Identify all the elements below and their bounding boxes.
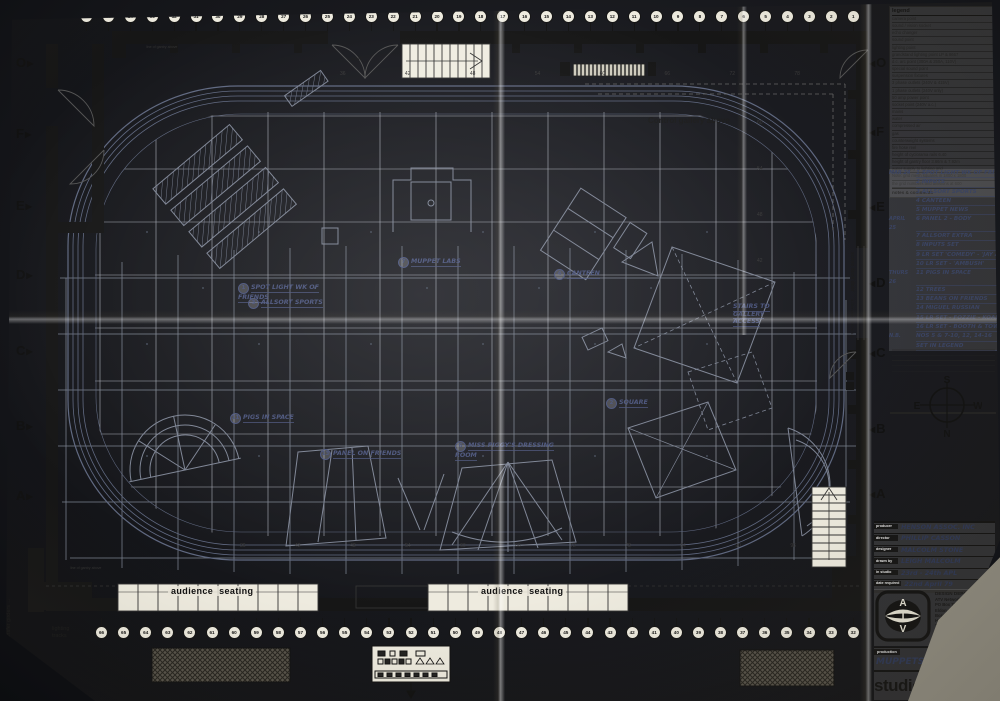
lighting-track-marker: 8 [693, 10, 706, 31]
title-block-label: drawn by [874, 558, 898, 563]
lighting-track-marker: 42 [626, 618, 639, 639]
lighting-track-marker: 51 [427, 618, 440, 639]
ruled-lines-block [892, 345, 995, 375]
grid-number: 78 [794, 71, 800, 77]
handwritten-annotation: 11PIGS IN SPACE [230, 413, 294, 424]
scene-dock-door-label: scene dock door 4.26m wide x 4.57m high [846, 252, 864, 338]
atv-logo-block: A T V DESIGN DEPARTMENT ATV Network LtdP… [874, 589, 995, 646]
lighting-tracks-top-label: lighting tracks → [36, 11, 80, 17]
note-row: 13 BEANS ON FRIENDS [889, 295, 997, 304]
title-block-label: in studio [874, 570, 898, 575]
lighting-track-marker: 3 [803, 10, 816, 31]
lighting-track-marker: 12 [606, 10, 619, 31]
note-row: 3 ALLSORT SPORTS [889, 188, 997, 197]
lighting-track-marker: 63 [161, 618, 174, 639]
title-block-label: designer [874, 547, 898, 552]
note-text: 14 MIGUEL RUSSIAN [916, 304, 997, 313]
lighting-track-marker: 17 [496, 10, 509, 31]
lighting-track-marker: 39 [692, 618, 705, 639]
legend-row: counterweight systems [892, 138, 998, 145]
note-date [889, 260, 914, 269]
legend-row: compressed air [892, 123, 998, 130]
title-block-row: designer MALCOLM STONE [874, 546, 995, 557]
grid-number: 72 [570, 543, 576, 549]
grid-number: 78 [625, 543, 631, 549]
exit-label-top: exit [352, 56, 362, 61]
lighting-track-marker: 62 [183, 618, 196, 639]
handwritten-annotation: STAIRS TO GALLERY ACCESS [733, 303, 791, 326]
atv-address-lines: ATV Network LtdPO Box 70Eldon AvenueBore… [935, 597, 985, 634]
production-number-label: number [975, 649, 995, 655]
title-block-row: drawn by LEIGH MALCOLM [874, 557, 995, 568]
note-date: APRIL 25 [889, 215, 914, 232]
note-row: THURS 26 11 PIGS IN SPACE [889, 269, 997, 286]
grid-letter: E [869, 200, 885, 214]
note-date [889, 232, 914, 241]
scale-block: scale 1:50 [965, 676, 995, 697]
address-line: Tel 01-953 6100 [935, 623, 985, 628]
lighting-track-marker: 50 [449, 618, 462, 639]
audience-seating-label-left: audience seating [168, 586, 256, 596]
photograph-of-floor-plan: lighting tracks → 3635343332313029282726… [0, 0, 1000, 701]
handwritten-annotation: 3ALLSORT SPORTS [248, 298, 323, 309]
legend-row: socket point (240V a.c.) [892, 102, 998, 109]
grid-number: 66 [665, 71, 671, 77]
legend-title: legend [892, 8, 998, 16]
lighting-track-marker: 45 [559, 618, 572, 639]
legend-row: lighting point [892, 45, 998, 52]
staircase-bottom-right [812, 487, 846, 567]
lighting-track-marker: 28 [255, 10, 268, 31]
lighting-track-marker: 61 [206, 618, 219, 639]
lighting-track-marker: 35 [102, 10, 115, 31]
line-of-gantry-label: line of gantry above [70, 566, 101, 570]
title-block-label: director [874, 535, 898, 540]
lighting-track-marker: 19 [452, 10, 465, 31]
legend-row: d.c. arc point (300A & 250A, 110V) [892, 59, 998, 66]
grid-number: 84 [680, 543, 686, 549]
lighting-track-marker: 30 [211, 10, 224, 31]
note-date [889, 295, 914, 304]
studio-strip: studio D scale 1:50 [874, 670, 995, 700]
note-text: 11 PIGS IN SPACE [916, 269, 997, 286]
lighting-track-marker: 55 [338, 618, 351, 639]
grid-number: 36 [340, 71, 346, 77]
grid-number: 42 [405, 71, 411, 77]
lighting-track-row-top: 3635343332313029282726252423222120191817… [80, 10, 860, 31]
lighting-track-marker: 6 [737, 10, 750, 31]
lighting-track-marker: 57 [294, 618, 307, 639]
note-text: 15 LR SET - FOZZIE - KOALA [916, 314, 997, 323]
title-block-value: 22nd April 79 [904, 580, 952, 589]
lighting-track-marker: 43 [604, 618, 617, 639]
audience-seating-label-right: audience seating [478, 586, 566, 596]
title-block-row: in studio 23rd - 24th APL [874, 569, 995, 580]
grid-letter: B [869, 422, 886, 436]
lighting-track-marker: 47 [515, 618, 528, 639]
lighting-track-marker: 36 [80, 10, 93, 31]
note-text: 8 INPUTS SET [916, 241, 997, 250]
grid-number: 42 [295, 543, 301, 549]
note-row: 9 LR SET 'COMEDY' - 'JAY ANDERSON' [889, 251, 997, 260]
lighting-track-marker: 34 [803, 618, 816, 639]
lighting-track-marker: 41 [648, 618, 661, 639]
legend-row: sound / vision socket [892, 23, 998, 30]
compass-s: S [944, 376, 951, 386]
note-row: 4 CANTEEN [889, 197, 997, 206]
handwritten-notes: MAR 24 1 SPOT LIGHT WK OF FRIENDS 2 INPU… [889, 169, 997, 351]
note-date [889, 314, 914, 323]
note-text: 10 LR SET - 'AMBUSH' [916, 260, 997, 269]
grid-number: 48 [470, 71, 476, 77]
note-text: 4 CANTEEN [916, 197, 997, 206]
grid-letter: D [869, 276, 886, 290]
grid-number: 60 [600, 71, 606, 77]
grid-numbers-bottom: 3642485460667278849096 [240, 543, 796, 549]
note-row: 2 INPUTS [889, 178, 997, 187]
title-block: producer HENSON ASSOC. INC director PHIL… [874, 521, 995, 593]
grid-number: 36 [240, 543, 246, 549]
blueprint-paper: lighting tracks → 3635343332313029282726… [0, 0, 1000, 701]
grid-letter: O [869, 56, 886, 70]
grid-letter: E [16, 199, 32, 213]
atv-address: DESIGN DEPARTMENT ATV Network LtdPO Box … [935, 589, 985, 646]
lighting-track-row-bottom: 6665646362616059585756555453525150494847… [95, 618, 860, 639]
legend-row: suspension fixtures [892, 73, 998, 80]
note-row: 15 LR SET - FOZZIE - KOALA [889, 314, 997, 323]
lighting-track-marker: 18 [474, 10, 487, 31]
legend-row: gas [892, 131, 998, 138]
set-pieces [118, 70, 830, 552]
floor-grid-pencil [56, 246, 858, 574]
lighting-track-marker: 5 [759, 10, 772, 31]
note-date: N.B. [889, 332, 914, 341]
legend-row: fire hose reel [892, 145, 998, 152]
lighting-track-marker: 27 [277, 10, 290, 31]
grid-letter: F [869, 125, 884, 139]
address-line: extension [935, 629, 985, 634]
title-block-value: LEIGH MALCOLM [901, 557, 961, 566]
note-text: 12 TREES [916, 286, 997, 295]
lighting-track-marker: 34 [124, 10, 137, 31]
lighting-track-marker: 26 [299, 10, 312, 31]
note-date: MAR 24 [889, 169, 914, 178]
title-block-label: producer [874, 524, 898, 529]
lighting-track-marker: 40 [670, 618, 683, 639]
lighting-track-marker: 56 [316, 618, 329, 639]
compass-n: N [943, 429, 950, 438]
grid-letter: C [16, 344, 33, 358]
legend-rows: camera pointsound / vision socketecho ch… [892, 16, 998, 188]
atv-logo: A T V [874, 589, 932, 643]
legend-row: sound point [892, 37, 998, 44]
legend-row: grandstand lighting point LP & 8667 [892, 52, 998, 59]
floor-hatched-boxes [152, 648, 834, 686]
note-date [889, 197, 914, 206]
note-text: 1 SPOT LIGHT WK OF FRIENDS [916, 169, 997, 178]
lighting-track-marker: 32 [168, 10, 181, 31]
lighting-track-marker: 7 [715, 10, 728, 31]
handwritten-annotation: 7MUPPET LABS [398, 257, 461, 268]
note-text: 7 ALLSORT EXTRA [916, 232, 997, 241]
note-date [889, 323, 914, 332]
production-title-handwritten: MUPPETS (72) [876, 657, 948, 667]
legend-row: 50 amp power point [892, 95, 998, 102]
note-row: 10 LR SET - 'AMBUSH' [889, 260, 997, 269]
legend-row: special sound point [892, 66, 998, 73]
legend-row: 3 phase outlets (240V & 415V) [892, 80, 998, 87]
lighting-track-marker: 22 [387, 10, 400, 31]
grid-letters-left: OFEDCBA [16, 0, 38, 701]
note-row: 8 INPUTS SET [889, 241, 997, 250]
title-block-row: producer HENSON ASSOC. INC [874, 523, 995, 534]
grid-letter: O [16, 56, 33, 70]
grid-letter: C [869, 346, 886, 360]
lighting-track-marker: 29 [233, 10, 246, 31]
grid-number: 72 [729, 71, 735, 77]
note-date [889, 304, 914, 313]
grid-numbers-top: 3642485460667278 [340, 71, 800, 77]
legend-row: echo changer [892, 30, 998, 37]
exit-label-right: exit [868, 36, 873, 44]
grid-letter: A [869, 487, 886, 501]
note-row: 14 MIGUEL RUSSIAN [889, 304, 997, 313]
title-block-value: 23rd - 24th APL [901, 569, 957, 578]
note-text: 2 INPUTS [916, 178, 997, 187]
lighting-track-marker: 64 [139, 618, 152, 639]
grid-letter: F [16, 127, 31, 141]
legend-row: height of gantry floor 3.66m & 7.92m [892, 159, 998, 166]
legend-row: mains [892, 109, 998, 116]
production-number-handwritten: 5377 [963, 655, 991, 665]
note-text: 9 LR SET 'COMEDY' - 'JAY ANDERSON' [916, 251, 997, 260]
lighting-track-marker: 46 [537, 618, 550, 639]
lighting-tracks-bottom-label: lightingtracks [52, 626, 69, 639]
lighting-track-marker: 37 [736, 618, 749, 639]
lighting-track-marker: 14 [562, 10, 575, 31]
lighting-track-marker: 9 [671, 10, 684, 31]
note-row: 7 ALLSORT EXTRA [889, 232, 997, 241]
lighting-track-marker: 59 [250, 618, 263, 639]
title-block-label: date required [874, 581, 901, 586]
note-date [889, 206, 914, 215]
lighting-track-marker: 31 [190, 10, 203, 31]
note-text: 16 LR SET - BOOTH & TOWER [916, 323, 997, 332]
grid-number: 42 [757, 258, 763, 264]
handwritten-annotation: 13PANEL ON FRIENDS [320, 449, 401, 460]
lighting-track-marker: 53 [382, 618, 395, 639]
lighting-track-marker: 48 [493, 618, 506, 639]
grid-number: 54 [405, 543, 411, 549]
lighting-track-marker: 20 [431, 10, 444, 31]
lighting-track-marker: 15 [540, 10, 553, 31]
scale-label: scale [979, 676, 995, 682]
note-text: 3 ALLSORT SPORTS [916, 188, 997, 197]
compass-rose: S N E W [912, 376, 982, 438]
note-text: NOS 5 & 7-10, 12, 14-16 [916, 332, 997, 341]
svg-text:A: A [899, 598, 906, 609]
lighting-track-marker: 23 [365, 10, 378, 31]
handwritten-annotation: 6MISS PIGGY'S DRESSING ROOM [455, 441, 567, 460]
lighting-track-marker: 25 [321, 10, 334, 31]
lighting-track-marker: 16 [518, 10, 531, 31]
note-row: N.B. NOS 5 & 7-10, 12, 14-16 [889, 332, 997, 341]
legend-row: water [892, 116, 998, 123]
lighting-track-marker: 44 [581, 618, 594, 639]
legend-row: 1 phase outlets (240V only) [892, 88, 998, 95]
note-date [889, 286, 914, 295]
control-gallery-label: Control gallery above [648, 116, 730, 125]
lighting-track-marker: 4 [781, 10, 794, 31]
note-row: 12 TREES [889, 286, 997, 295]
lighting-track-marker: 2 [825, 10, 838, 31]
grid-letter: B [16, 419, 33, 433]
note-date [889, 241, 914, 250]
title-block-value: HENSON ASSOC. INC [901, 523, 975, 532]
production-label: production [874, 649, 900, 655]
grid-number: 60 [460, 543, 466, 549]
grid-number: 48 [350, 543, 356, 549]
grid-letter: D [16, 268, 33, 282]
title-block-value: MALCOLM STONE [901, 546, 963, 555]
svg-text:V: V [900, 624, 907, 635]
compass-e: E [914, 401, 921, 412]
scale-value: 1:50 [965, 681, 995, 696]
note-date [889, 178, 914, 187]
svg-text:T: T [900, 611, 906, 622]
note-row: MAR 24 1 SPOT LIGHT WK OF FRIENDS [889, 169, 997, 178]
legend-row: camera point [892, 16, 998, 23]
handwritten-annotation: 2SQUARE [606, 398, 648, 409]
lighting-track-marker: 33 [825, 618, 838, 639]
lighting-track-marker: 54 [360, 618, 373, 639]
grid-letter: A [16, 489, 33, 503]
note-date: THURS 26 [889, 269, 914, 286]
transfer-girders-label: transfer girders → [6, 598, 12, 642]
note-row: 5 MUPPET NEWS [889, 206, 997, 215]
lighting-track-marker: 33 [146, 10, 159, 31]
line-of-gantry-label: line of gantry above [146, 45, 177, 49]
lighting-track-marker: 38 [714, 618, 727, 639]
note-text: 13 BEANS ON FRIENDS [916, 295, 997, 304]
lighting-track-marker: 1 [847, 10, 860, 31]
lighting-track-marker: 10 [650, 10, 663, 31]
lighting-track-marker: 32 [847, 618, 860, 639]
lighting-track-marker: 49 [471, 618, 484, 639]
lighting-track-marker: 65 [117, 618, 130, 639]
lighting-track-marker: 35 [780, 618, 793, 639]
lighting-track-marker: 24 [343, 10, 356, 31]
equipment-symbol-box [372, 646, 450, 698]
title-block-value: PHILLIP CASSON [901, 534, 960, 543]
lighting-track-marker: 52 [405, 618, 418, 639]
note-date [889, 188, 914, 197]
lighting-track-marker: 60 [228, 618, 241, 639]
grid-number: 66 [515, 543, 521, 549]
note-row: APRIL 25 6 PANEL 2 - BODY [889, 215, 997, 232]
note-text: 6 PANEL 2 - BODY [916, 215, 997, 232]
grid-number: 48 [757, 212, 763, 218]
legend-row: height of cyclorama rails 6.40 [892, 152, 998, 159]
grid-number: 54 [535, 71, 541, 77]
lighting-track-marker: 58 [272, 618, 285, 639]
lighting-track-marker: 13 [584, 10, 597, 31]
compass-w: W [973, 401, 982, 412]
lighting-track-marker: 36 [758, 618, 771, 639]
note-date [889, 251, 914, 260]
grid-number: 60 [757, 120, 763, 126]
grid-number: 96 [790, 543, 796, 549]
lighting-track-marker: 21 [409, 10, 422, 31]
production-strip: production number MUPPETS (72) 5377 [874, 647, 995, 671]
lighting-track-marker: 11 [628, 10, 641, 31]
note-row: 16 LR SET - BOOTH & TOWER [889, 323, 997, 332]
grid-number: 90 [735, 543, 741, 549]
handwritten-annotation: 4CANTEEN [554, 269, 600, 280]
title-block-row: director PHILLIP CASSON [874, 534, 995, 545]
lighting-track-marker: 66 [95, 618, 108, 639]
studio-name: studio D [874, 677, 938, 695]
note-text: 5 MUPPET NEWS [916, 206, 997, 215]
grid-number: 54 [757, 166, 763, 172]
